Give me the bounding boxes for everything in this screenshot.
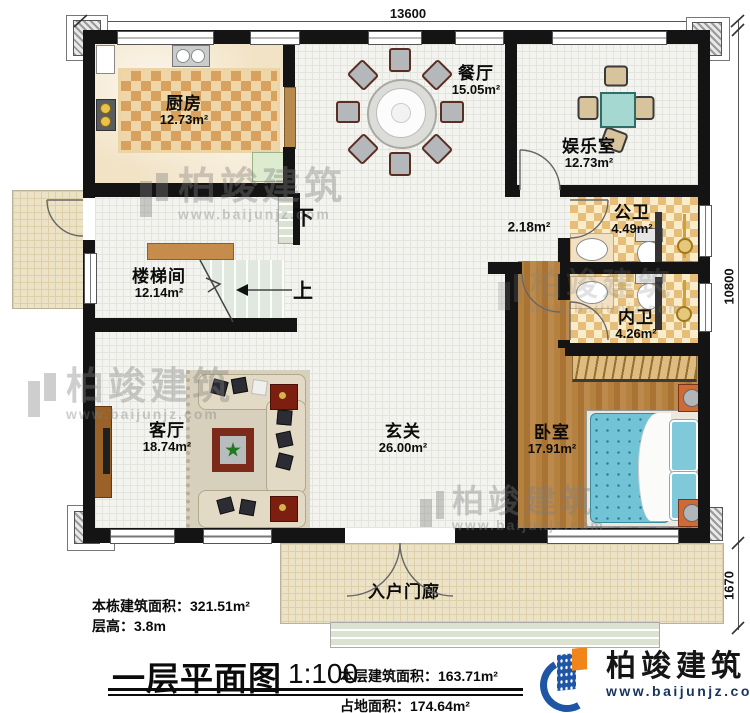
window-dining-1 bbox=[250, 31, 300, 45]
kitchen-sliding-door bbox=[284, 87, 296, 149]
label-living: 客厅18.74m² bbox=[143, 421, 191, 455]
wall-entertainment-bottom-right bbox=[560, 185, 710, 197]
dimension-line-top bbox=[80, 21, 730, 22]
brand-website: www.baijunjz.com bbox=[606, 683, 750, 699]
wall-bath-bottom bbox=[565, 343, 710, 356]
wall-public-bath-left bbox=[558, 238, 570, 262]
entry-porch bbox=[280, 543, 724, 624]
window-living-2 bbox=[203, 529, 272, 544]
label-stairs-down: 下 bbox=[294, 202, 314, 231]
wall-entertainment-bottom-left bbox=[505, 185, 520, 197]
wall-stairwell-bottom bbox=[83, 318, 297, 332]
side-table-top-dot bbox=[279, 392, 286, 399]
sofa-cushion bbox=[239, 499, 256, 516]
entry-door-opening bbox=[345, 528, 455, 543]
label-entertainment: 娱乐室12.73m² bbox=[562, 137, 616, 171]
brand-logo-icon bbox=[540, 646, 598, 704]
floor-plan-canvas: 13600 10800 1670 bbox=[0, 0, 750, 713]
sofa-pillow-white bbox=[251, 379, 268, 396]
brand-logo: 柏竣建筑 www.baijunjz.com bbox=[540, 646, 750, 704]
wall-private-bath-left-upper bbox=[558, 274, 570, 300]
label-public-bath: 公卫4.49m² bbox=[611, 203, 652, 237]
wall-dining-divider bbox=[505, 44, 517, 197]
bed-pillow-1 bbox=[670, 420, 698, 472]
label-dining: 餐厅15.05m² bbox=[452, 64, 500, 98]
dimension-line-right bbox=[738, 21, 739, 630]
sofa-cushion bbox=[276, 431, 294, 449]
sofa-cushion bbox=[276, 409, 292, 425]
window-entertainment bbox=[552, 31, 667, 45]
floor-height-line: 层高：3.8m bbox=[92, 616, 166, 636]
dining-chair bbox=[389, 152, 411, 176]
wall-bedroom-left bbox=[505, 262, 518, 528]
side-porch bbox=[12, 190, 85, 309]
title-rule-thick bbox=[108, 688, 523, 691]
brand-name: 柏竣建筑 bbox=[606, 651, 750, 683]
sofa-cushion bbox=[231, 377, 248, 394]
window-private-bath bbox=[699, 283, 712, 332]
porch-step bbox=[330, 622, 660, 648]
label-passage-area: 2.18m² bbox=[508, 220, 551, 235]
bed-blanket bbox=[638, 413, 671, 521]
game-table bbox=[600, 92, 636, 128]
stair-landing bbox=[147, 243, 234, 260]
shower-divider-public bbox=[655, 212, 662, 262]
window-stairwell bbox=[84, 253, 97, 304]
window-kitchen bbox=[117, 31, 214, 45]
footprint-area-line: 占地面积：174.64m² bbox=[340, 696, 470, 713]
dimension-top-value: 13600 bbox=[387, 6, 429, 21]
dining-chair bbox=[389, 48, 411, 72]
window-dining-2 bbox=[368, 31, 422, 45]
game-chair bbox=[578, 96, 599, 120]
label-bedroom: 卧室17.91m² bbox=[528, 423, 576, 457]
public-bath-sink bbox=[576, 238, 608, 261]
private-shower-head bbox=[676, 306, 692, 322]
window-dining-3 bbox=[455, 31, 504, 45]
game-chair bbox=[634, 96, 655, 120]
label-hall: 玄关26.00m² bbox=[379, 422, 427, 456]
wall-kitchen-bottom bbox=[83, 183, 295, 197]
stove-burner-2 bbox=[100, 116, 111, 127]
kitchen-cabinet bbox=[252, 152, 285, 182]
dining-chair bbox=[440, 101, 464, 123]
dining-chair bbox=[336, 101, 360, 123]
label-private-bath: 内卫4.26m² bbox=[615, 308, 656, 342]
label-entry-porch: 入户门廊 bbox=[368, 582, 440, 601]
building-area-line: 本栋建筑面积：321.51m² bbox=[92, 596, 250, 616]
wall-passage-bottom-right bbox=[560, 262, 710, 274]
floor-area-line: 本层建筑面积：163.71m² bbox=[340, 666, 498, 686]
dimension-right-value: 10800 bbox=[722, 264, 737, 310]
tv bbox=[103, 428, 110, 474]
private-bath-sink bbox=[576, 281, 608, 304]
window-bedroom bbox=[547, 529, 679, 544]
side-table-bottom-dot bbox=[279, 504, 286, 511]
window-public-bath bbox=[699, 205, 712, 257]
label-stairwell: 楼梯间12.14m² bbox=[132, 267, 186, 301]
window-living-1 bbox=[110, 529, 175, 544]
watermark-logo-icon bbox=[28, 373, 58, 417]
game-chair bbox=[604, 66, 628, 87]
wall-kitchen-right-upper bbox=[283, 44, 295, 87]
stove-burner-1 bbox=[100, 103, 111, 114]
public-shower-head bbox=[677, 238, 693, 254]
page-title: 一层平面图 bbox=[112, 652, 282, 700]
dining-table-center bbox=[391, 103, 411, 123]
label-stairs-up: 上 bbox=[293, 275, 313, 304]
side-door-opening bbox=[83, 198, 95, 240]
fridge bbox=[96, 45, 115, 74]
label-kitchen: 厨房12.73m² bbox=[160, 94, 208, 128]
